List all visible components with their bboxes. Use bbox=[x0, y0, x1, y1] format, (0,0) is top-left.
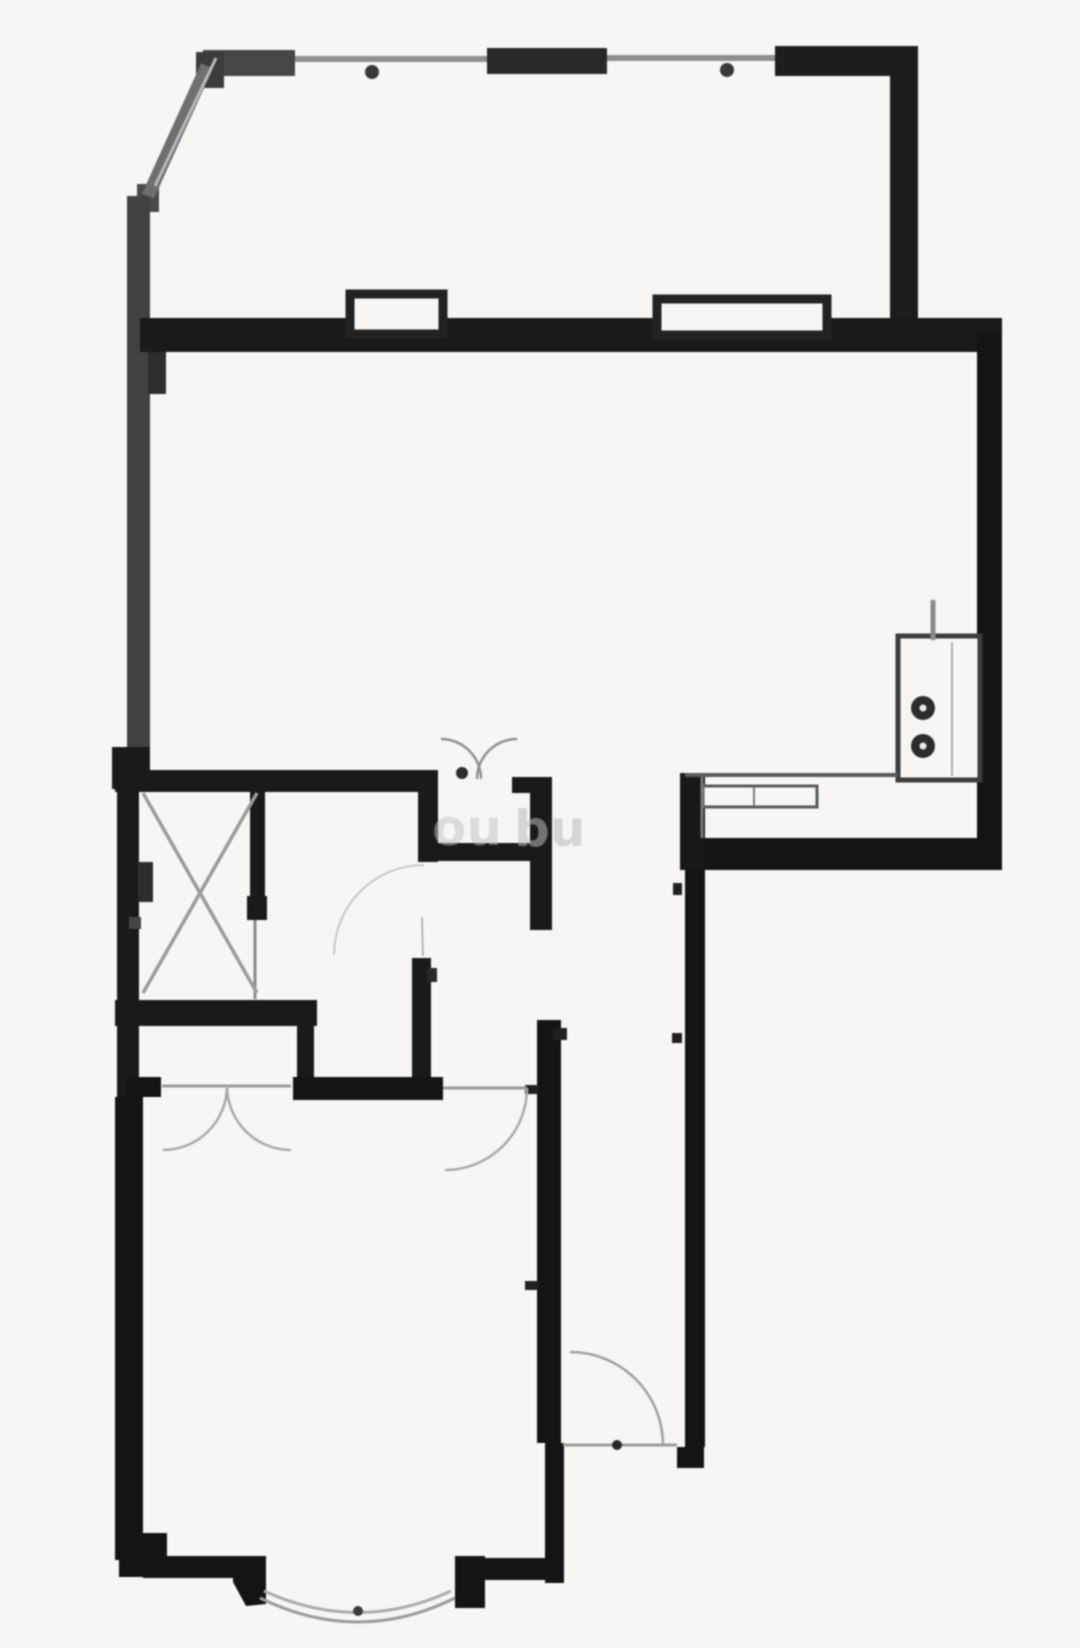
stove-burner-2-center bbox=[920, 743, 927, 750]
floorplan: oubu bbox=[0, 0, 1080, 1648]
lowerleft-corner-block bbox=[112, 747, 150, 789]
watermark-fragment-1: ou bbox=[432, 799, 502, 857]
closet-east-wall bbox=[250, 790, 265, 904]
hall-east-wall bbox=[685, 870, 705, 1447]
bath-east-tick bbox=[427, 968, 437, 982]
window-post-left bbox=[365, 65, 379, 79]
bath-door-line bbox=[422, 917, 423, 956]
hall-west-tick-lower bbox=[525, 1281, 539, 1290]
vestibule-east-wall-top bbox=[512, 777, 552, 793]
bedroom-west-wall bbox=[115, 1097, 143, 1560]
bay-corner-right-block bbox=[455, 1556, 485, 1608]
kitchen-unit bbox=[898, 636, 980, 780]
left-wall-pier-mid bbox=[138, 862, 153, 902]
main-cross-wall bbox=[140, 318, 1002, 352]
entry-door-dot bbox=[612, 1440, 622, 1450]
hall-west-tick-upper bbox=[553, 1028, 567, 1040]
window-box-left bbox=[350, 294, 443, 334]
bedroom-closet-stub bbox=[126, 1077, 161, 1097]
closet-east-wall-end bbox=[247, 896, 267, 920]
hall-east-notch bbox=[673, 883, 682, 895]
hall-west-wall bbox=[537, 1020, 561, 1443]
hall-north-wall bbox=[293, 1077, 443, 1100]
kitchen-south-wall bbox=[698, 838, 1002, 870]
balcony-right-wall bbox=[890, 46, 918, 338]
balcony-top-wall-mid bbox=[487, 48, 607, 74]
lowerleft-top-wall bbox=[115, 770, 438, 792]
stove-burner-1-center bbox=[920, 705, 927, 712]
kitchen-sink bbox=[703, 786, 817, 807]
watermark-fragment-2: bu bbox=[514, 800, 585, 858]
hall-east-wall-foot bbox=[677, 1447, 704, 1468]
scanned-floor-plan-page: oubu bbox=[0, 0, 1080, 1648]
bedroom-south-wall-right bbox=[483, 1558, 559, 1580]
closet-south-wall bbox=[115, 1000, 317, 1026]
livingroom-door-hinge-dot bbox=[456, 767, 468, 779]
left-wall-tick bbox=[129, 917, 141, 929]
left-exterior-wall bbox=[127, 196, 150, 781]
hall-east-tick bbox=[672, 1033, 682, 1043]
right-exterior-wall bbox=[977, 333, 1002, 870]
window-box-right bbox=[657, 299, 827, 335]
bay-window-dot bbox=[353, 1606, 363, 1616]
left-wall-pier-top bbox=[148, 348, 166, 394]
west-wall-lower bbox=[117, 789, 139, 1097]
window-post-right bbox=[720, 63, 734, 77]
